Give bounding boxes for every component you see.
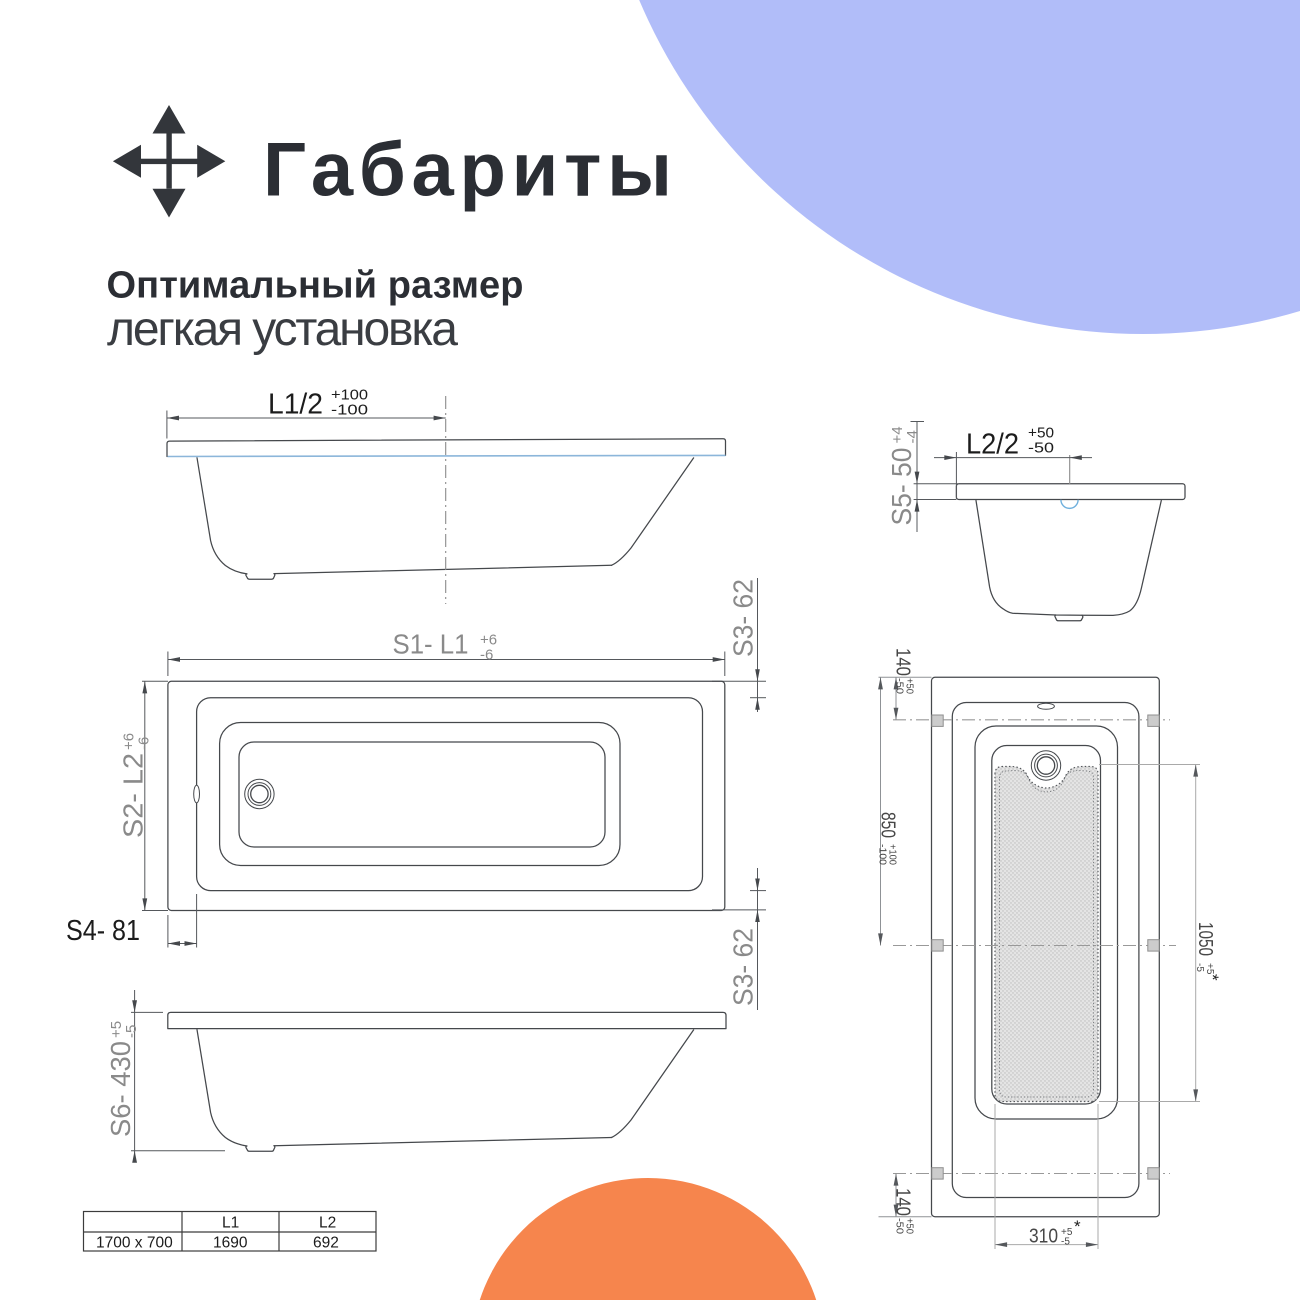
- svg-text:-50: -50: [1028, 440, 1054, 457]
- svg-text:692: 692: [313, 1235, 339, 1252]
- svg-text:Габариты: Габариты: [263, 127, 672, 212]
- svg-text:-5: -5: [1194, 963, 1205, 972]
- svg-text:850: 850: [877, 812, 899, 838]
- svg-text:-50: -50: [894, 678, 905, 694]
- svg-text:-4: -4: [904, 430, 921, 443]
- svg-text:1690: 1690: [213, 1235, 248, 1252]
- svg-text:L2/2: L2/2: [966, 429, 1019, 461]
- svg-text:*: *: [1074, 1217, 1081, 1236]
- svg-text:S1- L1: S1- L1: [393, 629, 469, 660]
- svg-text:-100: -100: [331, 402, 368, 419]
- svg-text:S6- 430: S6- 430: [105, 1041, 136, 1137]
- svg-text:L1: L1: [222, 1215, 239, 1232]
- svg-text:140: 140: [892, 1188, 914, 1216]
- svg-text:L2: L2: [319, 1215, 336, 1232]
- svg-text:S3- 62: S3- 62: [728, 928, 759, 1006]
- svg-text:S4- 81: S4- 81: [66, 915, 140, 947]
- svg-text:140: 140: [892, 648, 914, 676]
- svg-text:310: 310: [1029, 1226, 1058, 1248]
- svg-text:-50: -50: [894, 1218, 905, 1234]
- svg-text:S3- 62: S3- 62: [728, 579, 759, 657]
- svg-text:1700 x 700: 1700 x 700: [96, 1235, 173, 1252]
- svg-text:1050: 1050: [1194, 922, 1216, 956]
- svg-text:-100: -100: [877, 844, 888, 865]
- svg-text:-6: -6: [480, 647, 493, 664]
- svg-text:-5: -5: [1061, 1237, 1070, 1248]
- svg-text:S2- L2: S2- L2: [118, 753, 149, 838]
- svg-text:*: *: [1203, 974, 1222, 981]
- svg-text:-5: -5: [123, 1025, 140, 1038]
- svg-text:легкая установка: легкая установка: [107, 303, 458, 356]
- svg-text:-6: -6: [136, 737, 153, 750]
- svg-text:Оптимальный размер: Оптимальный размер: [107, 265, 524, 307]
- svg-text:L1/2: L1/2: [268, 389, 323, 421]
- svg-text:S5- 50: S5- 50: [886, 448, 917, 526]
